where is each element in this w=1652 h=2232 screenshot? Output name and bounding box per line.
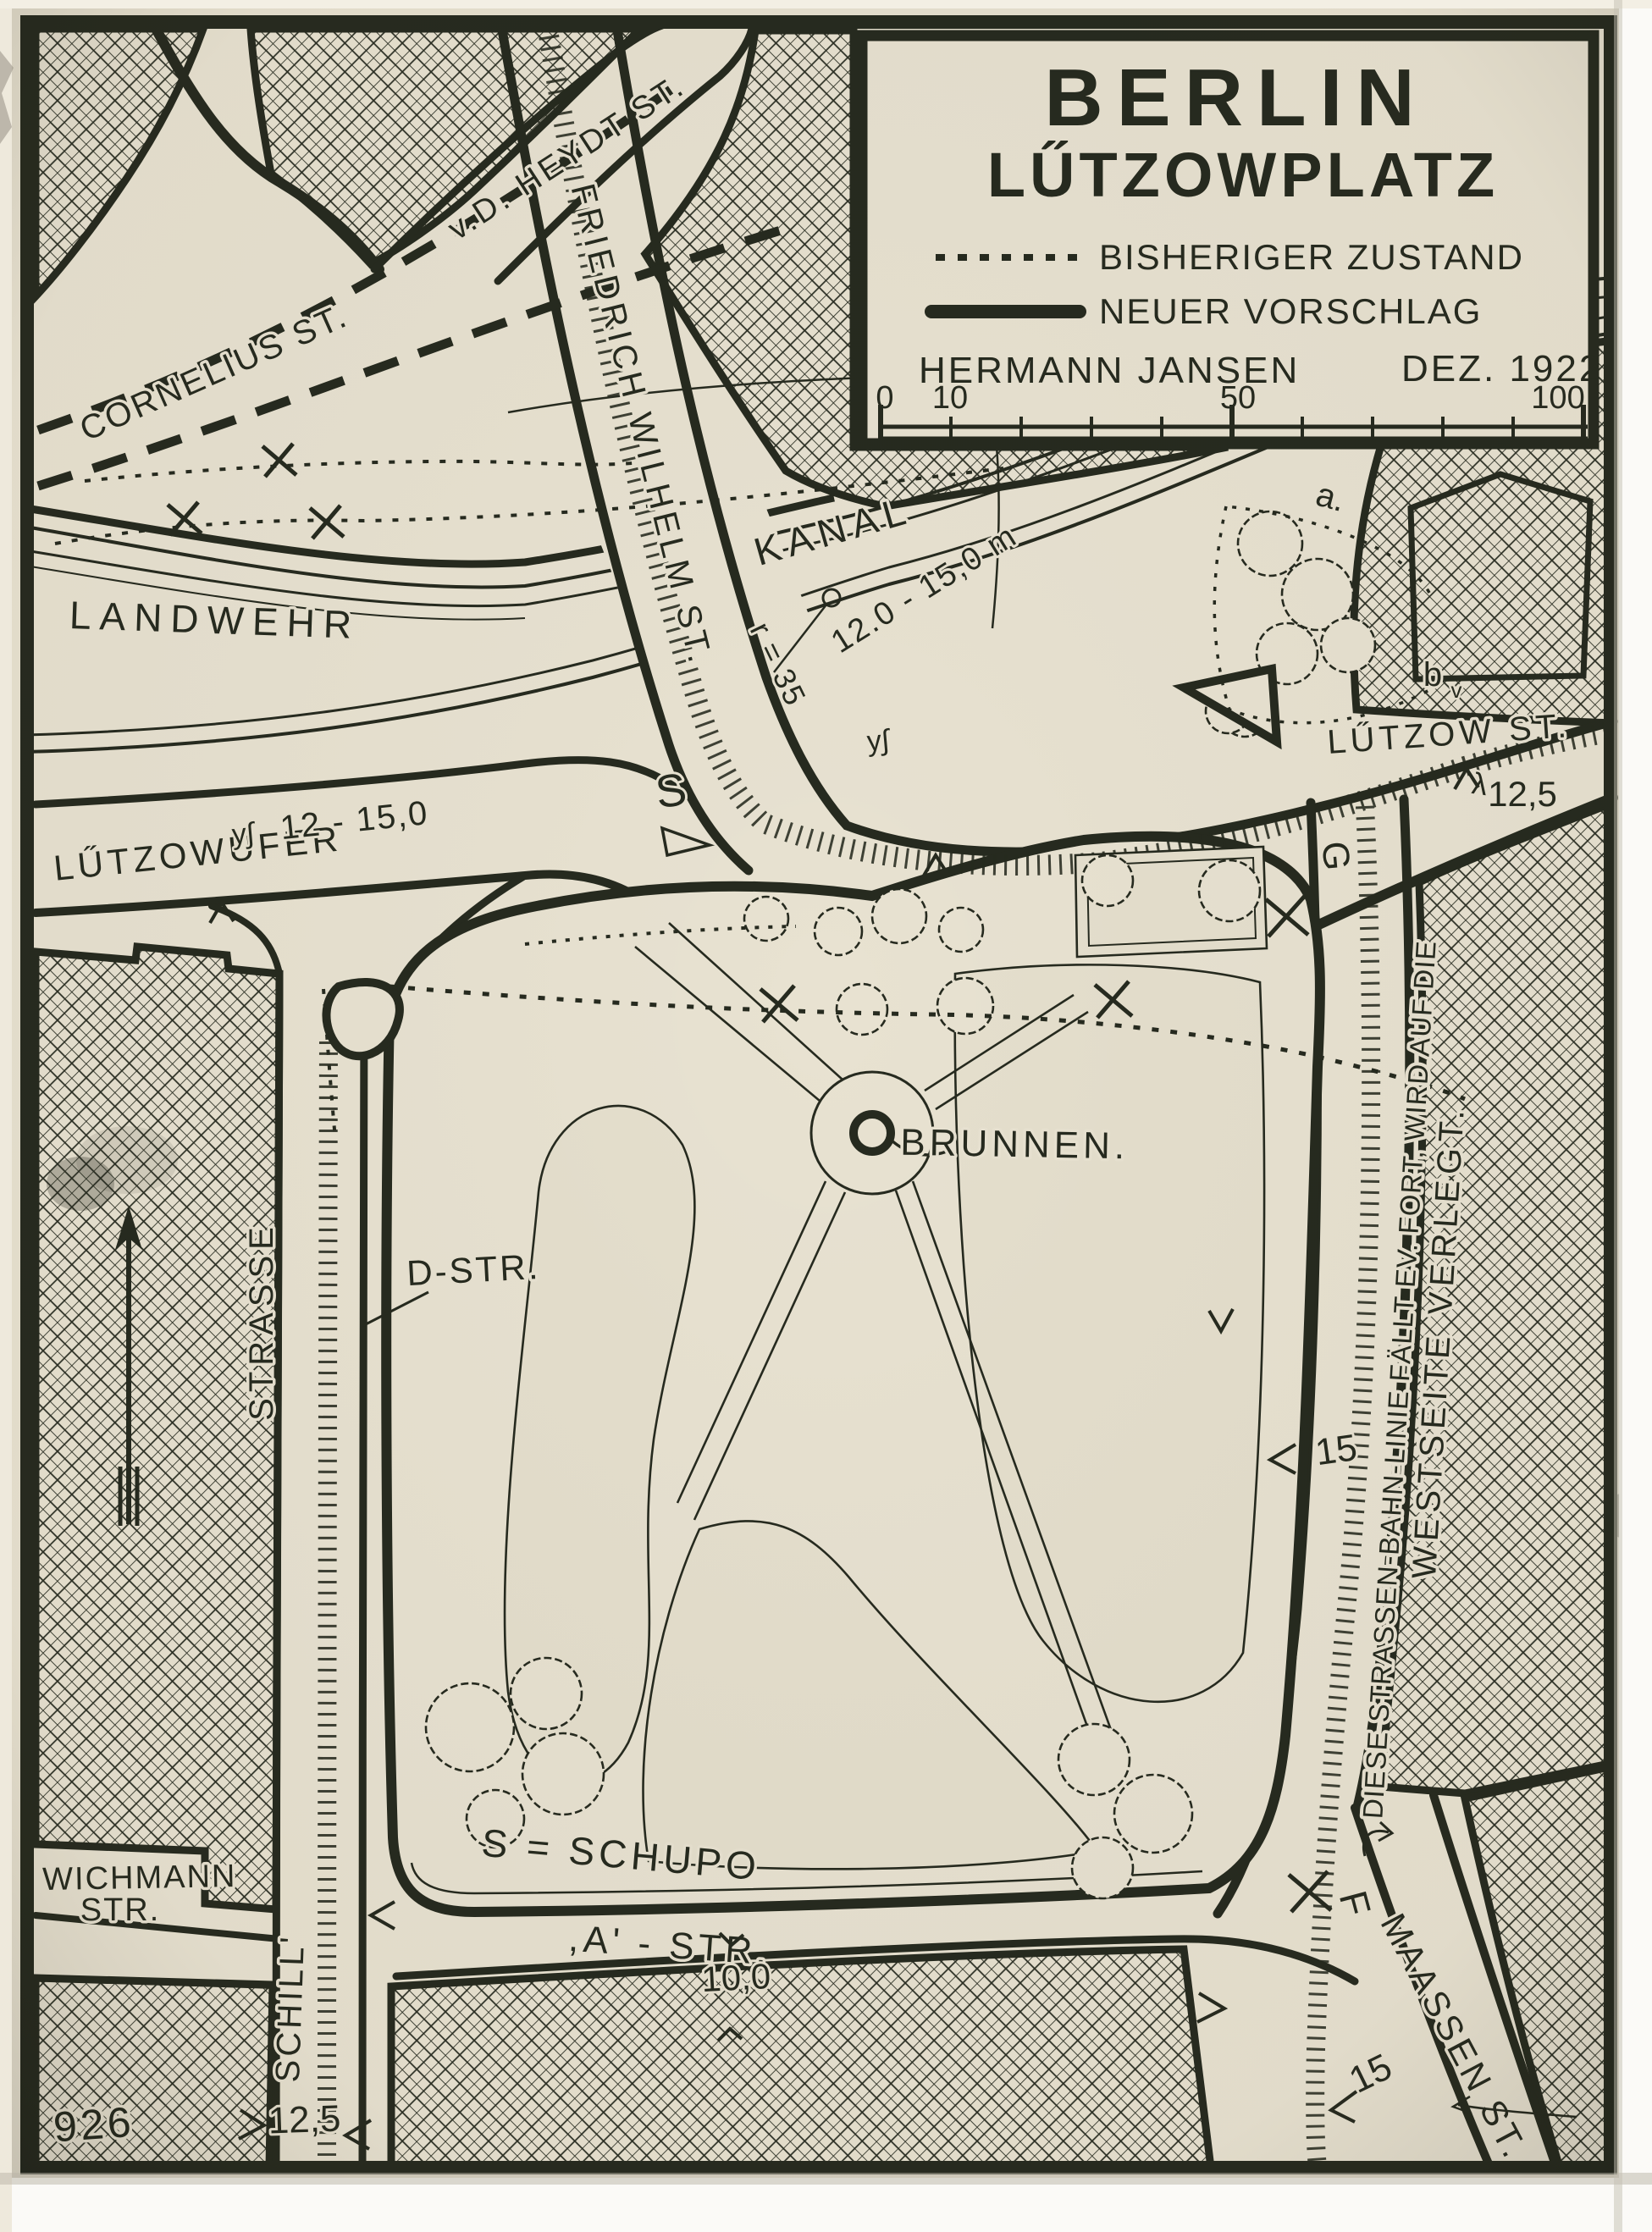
photo-shadow-bottom [0, 2173, 1652, 2185]
photo-edge-right [1619, 0, 1652, 2232]
photo-edge-bottom [0, 2178, 1652, 2232]
photo-stain [76, 1126, 178, 1194]
photo-edge-top [0, 0, 1652, 8]
photo-edge-left [0, 0, 12, 2232]
photo-shadow-right [1614, 0, 1622, 2232]
photo-of-plan: BERLIN LŰTZOWPLATZ BISHERIGER ZUSTAND NE… [0, 0, 1652, 2232]
map-canvas: BERLIN LŰTZOWPLATZ BISHERIGER ZUSTAND NE… [0, 0, 1652, 2232]
photo-artifacts [0, 0, 1652, 2232]
